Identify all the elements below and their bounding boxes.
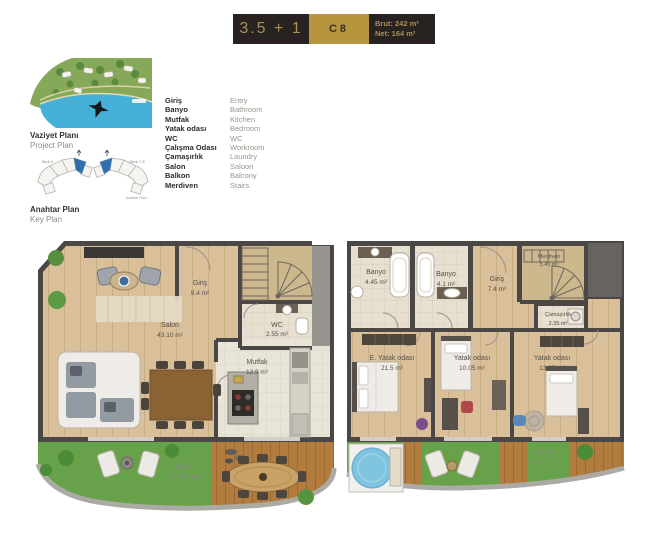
- label-giris-name: Giriş: [193, 280, 208, 287]
- site-plan-thumbnail: [30, 58, 152, 128]
- label-banyo1-area: 4.45 m²: [365, 279, 388, 286]
- label-balkon1-name: Balkon: [175, 464, 197, 471]
- label-wc-name: WC: [271, 322, 283, 329]
- hall-floor: [588, 299, 620, 332]
- label-giris2-area: 7.4 m²: [488, 286, 507, 293]
- label-banyo1-name: Banyo: [366, 269, 386, 276]
- label-camasirlik-area: 2.35 m²: [549, 321, 568, 327]
- elevator-shaft: [588, 243, 622, 297]
- label-giris2-name: Giriş: [490, 276, 505, 283]
- label-salon-name: Salon: [161, 322, 179, 329]
- label-eyatak-name: E. Yatak odası: [370, 355, 415, 362]
- floor-plan-sheet: 3.5 + 1 C8 Brut: 242 m² Net: 164 m² Vazi…: [0, 0, 660, 546]
- label-balkon2-area: (11.35 m²): [529, 459, 561, 466]
- label-balkon1-area: (17.65 m²): [170, 474, 202, 481]
- label-wc-area: 2.55 m²: [266, 331, 289, 338]
- site-plan-caption-mark: [132, 99, 146, 103]
- balcony-lower: [38, 437, 334, 508]
- key-plan-caption: Anahtar Planı: [126, 196, 147, 200]
- label-merdiven-name: Merdiven: [538, 254, 561, 260]
- floor-plan-upper: Banyo 4.45 m² Banyo 4.1 m² Giriş 7.4 m² …: [347, 241, 624, 492]
- label-banyo2-area: 4.1 m²: [437, 281, 456, 288]
- block-right-label: Blok 7-8: [130, 159, 145, 164]
- north-arrow-icon: [77, 150, 81, 156]
- label-giris-area: 9.4 m²: [191, 290, 210, 297]
- balcony-upper: [347, 437, 624, 492]
- label-salon-area: 43.10 m²: [157, 332, 183, 339]
- block-left-label: Blok 3: [42, 159, 54, 164]
- label-eyatak-area: 21.5 m²: [381, 365, 404, 372]
- north-arrow-icon: [105, 150, 109, 156]
- label-balkon2-name: Balkon: [534, 449, 556, 456]
- floor-plan-lower: Salon 43.10 m² Giriş 9.4 m² WC 2.55 m² M…: [38, 241, 334, 508]
- label-mutfak-name: Mutfak: [246, 359, 268, 366]
- label-banyo2-name: Banyo: [436, 271, 456, 278]
- label-yatak2-name: Yatak odası: [454, 355, 491, 362]
- key-plan-thumbnail: Blok 3 Blok 7-8 Anahtar Planı: [38, 150, 148, 200]
- label-yatak3-name: Yatak odası: [534, 355, 571, 362]
- plans-canvas: Blok 3 Blok 7-8 Anahtar Planı: [0, 0, 660, 546]
- service-shaft: [312, 246, 330, 346]
- label-yatak2-area: 10.05 m²: [459, 365, 485, 372]
- label-camasirlik-name: Çamaşırlık: [545, 312, 572, 318]
- label-mutfak-area: 12.9 m²: [246, 369, 269, 376]
- label-yatak3-area: 13.25 m²: [539, 365, 565, 372]
- label-merdiven-area: 5.45 m²: [540, 262, 559, 268]
